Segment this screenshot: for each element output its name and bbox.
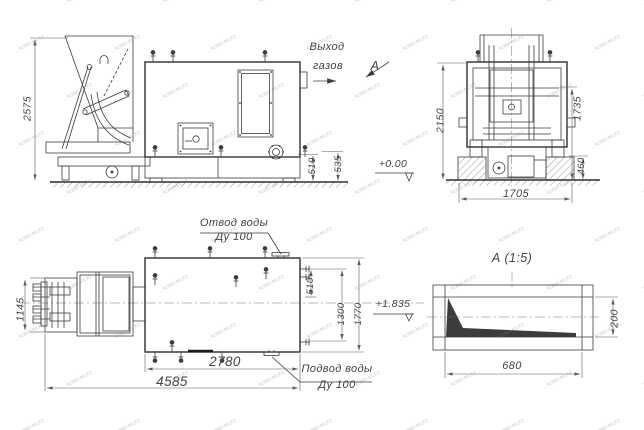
wedge-profile — [446, 298, 576, 337]
gas-outlet-label-line1: Выход — [299, 42, 355, 54]
water-outlet-label-line1: Отвод воды — [196, 218, 272, 230]
foundation-block-left — [458, 157, 486, 180]
level-zero-label: +0.00 — [372, 159, 414, 170]
foundation-block-right — [546, 157, 574, 180]
water-supply-label-line1: Подвод воды — [297, 364, 377, 376]
gas-outlet-stub — [300, 72, 307, 88]
dim-label-2150: 2150 — [435, 102, 446, 140]
fuel-hopper — [65, 36, 133, 142]
technical-drawing-page: 2575 510 535 Выход газов А 2150 1735 460… — [0, 0, 644, 430]
front-view — [375, 28, 600, 203]
dim-label-4585: 4585 — [142, 375, 202, 389]
side-view-valves — [151, 50, 308, 157]
boiler-body-front — [459, 45, 575, 157]
side-view — [30, 36, 348, 188]
feeder-base-frame — [46, 142, 150, 180]
section-a-label: А — [364, 60, 386, 73]
level-mark-water — [373, 314, 414, 321]
water-outlet-label-line2: Ду 100 — [196, 232, 272, 244]
dim-label-1735: 1735 — [572, 90, 583, 128]
hopper-plan — [77, 272, 145, 336]
water-supply-label-line2: Ду 100 — [297, 380, 377, 392]
water-supply-flange — [264, 350, 279, 356]
dim-label-535: 535 — [334, 146, 344, 182]
dim-label-510-plan: 510 — [306, 268, 316, 304]
dim-label-200: 200 — [609, 300, 620, 338]
inspection-panel — [238, 70, 273, 137]
boiler-body-plan — [145, 258, 300, 352]
plan-view-valves — [153, 246, 269, 363]
dim-label-460: 460 — [577, 148, 587, 184]
base-machinery-front — [488, 147, 546, 178]
level-mark-zero — [375, 173, 414, 181]
side-view-dimensions — [30, 38, 343, 181]
dim-label-510-side: 510 — [308, 148, 318, 184]
dim-label-680: 680 — [492, 361, 532, 373]
feeder-plan — [33, 278, 77, 332]
dim-label-2780: 2780 — [195, 355, 255, 369]
ground-line-side — [50, 182, 348, 188]
furnace-door — [178, 123, 213, 154]
dim-label-1300: 1300 — [337, 295, 347, 333]
dim-label-1770: 1770 — [354, 295, 364, 333]
dim-label-2575: 2575 — [22, 90, 33, 128]
dim-label-1145: 1145 — [15, 291, 26, 329]
level-water-label: +1.835 — [372, 299, 414, 310]
detail-a-title: А (1:5) — [481, 252, 543, 265]
gas-outlet-label-line2: газов — [300, 61, 356, 73]
stoker-mechanism — [62, 65, 131, 150]
boiler-body-side — [145, 62, 307, 182]
dim-label-1705: 1705 — [496, 189, 536, 201]
